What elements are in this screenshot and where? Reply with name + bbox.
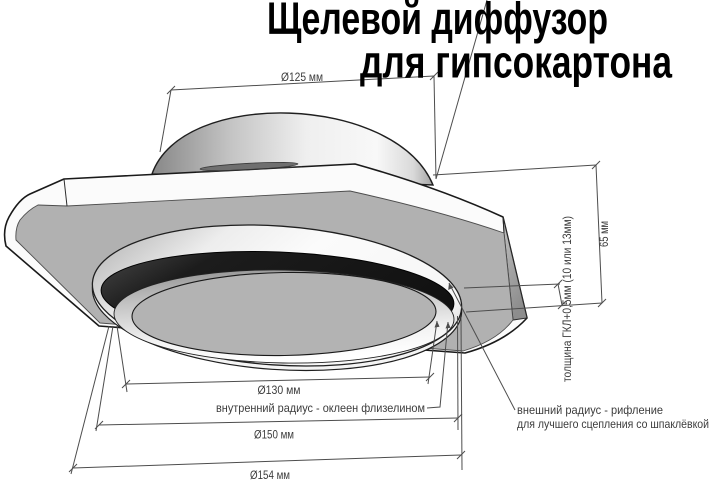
- svg-text:внешний радиус - рифление: внешний радиус - рифление: [517, 403, 663, 417]
- svg-text:внутренний радиус - оклеен фли: внутренний радиус - оклеен флизелином: [216, 401, 425, 415]
- svg-text:толщина ГКЛ+0,5мм (10 или 13мм: толщина ГКЛ+0,5мм (10 или 13мм): [560, 216, 574, 382]
- svg-text:65 мм: 65 мм: [597, 221, 611, 247]
- svg-text:Ø154 мм: Ø154 мм: [250, 468, 290, 482]
- svg-text:Ø130 мм: Ø130 мм: [258, 383, 301, 397]
- svg-text:для лучшего сцепления со шпакл: для лучшего сцепления со шпаклёвкой: [517, 417, 709, 431]
- svg-text:Ø125 мм: Ø125 мм: [281, 70, 323, 84]
- svg-text:Ø150 мм: Ø150 мм: [254, 428, 294, 442]
- svg-text:для гипсокартона: для гипсокартона: [360, 37, 673, 88]
